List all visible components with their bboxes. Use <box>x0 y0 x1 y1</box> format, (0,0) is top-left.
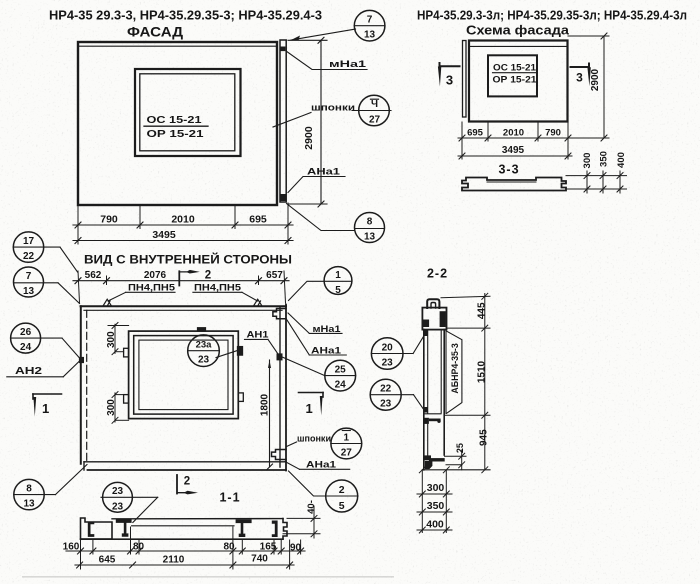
svg-text:23а: 23а <box>196 340 213 351</box>
svg-text:165: 165 <box>260 542 277 553</box>
svg-text:562: 562 <box>85 270 102 281</box>
svg-text:400: 400 <box>426 519 444 531</box>
svg-text:2076: 2076 <box>144 270 167 281</box>
svg-text:740: 740 <box>251 554 268 565</box>
svg-text:23: 23 <box>380 399 392 410</box>
svg-text:22: 22 <box>380 384 392 395</box>
svg-text:ОР 15-21: ОР 15-21 <box>147 129 205 140</box>
svg-text:300: 300 <box>106 399 117 416</box>
svg-text:695: 695 <box>249 214 267 226</box>
svg-text:300: 300 <box>427 482 445 494</box>
svg-text:3: 3 <box>446 73 453 88</box>
svg-text:24: 24 <box>20 342 32 353</box>
svg-text:5: 5 <box>335 285 341 296</box>
svg-text:шпонки: шпонки <box>311 103 355 114</box>
svg-text:8: 8 <box>26 484 32 495</box>
svg-text:23: 23 <box>112 486 124 497</box>
svg-text:ОС 15-21: ОС 15-21 <box>493 63 536 73</box>
svg-text:7: 7 <box>367 15 373 26</box>
svg-text:25: 25 <box>455 443 465 453</box>
svg-text:ПН4,ПН5: ПН4,ПН5 <box>128 283 175 293</box>
svg-text:1800: 1800 <box>260 393 271 416</box>
svg-text:22: 22 <box>23 251 35 262</box>
svg-text:ПН4,ПН5: ПН4,ПН5 <box>194 283 241 293</box>
svg-text:3495: 3495 <box>502 145 525 156</box>
svg-text:23: 23 <box>112 502 124 513</box>
svg-text:445: 445 <box>476 302 487 319</box>
svg-text:8: 8 <box>367 217 373 228</box>
svg-text:20: 20 <box>382 343 394 354</box>
svg-text:300: 300 <box>582 153 593 169</box>
svg-text:3495: 3495 <box>152 229 176 241</box>
svg-text:3-3: 3-3 <box>498 163 519 177</box>
svg-text:25: 25 <box>335 365 347 376</box>
svg-text:80: 80 <box>133 542 145 553</box>
svg-text:790: 790 <box>545 128 561 139</box>
svg-text:2: 2 <box>205 270 211 282</box>
svg-text:23: 23 <box>382 358 394 369</box>
svg-text:1: 1 <box>42 401 49 416</box>
svg-text:1: 1 <box>306 401 313 416</box>
svg-text:НР4-35 29.3-3, НР4-35.29.35-3;: НР4-35 29.3-3, НР4-35.29.35-3; НР4-35.29… <box>49 8 322 23</box>
svg-text:13: 13 <box>23 286 35 297</box>
svg-text:160: 160 <box>63 542 80 553</box>
svg-text:АНа1: АНа1 <box>307 167 341 178</box>
svg-text:350: 350 <box>427 500 445 512</box>
svg-text:13: 13 <box>364 232 376 243</box>
svg-text:17: 17 <box>23 236 35 247</box>
svg-text:27: 27 <box>369 115 381 126</box>
svg-text:90: 90 <box>290 543 302 554</box>
svg-text:400: 400 <box>616 152 627 168</box>
svg-text:790: 790 <box>100 214 118 226</box>
svg-text:23: 23 <box>198 355 210 366</box>
svg-text:Схема фасада: Схема фасада <box>466 23 570 38</box>
svg-text:27: 27 <box>341 448 353 459</box>
svg-text:ВИД С ВНУТРЕННЕЙ СТОРОНЫ: ВИД С ВНУТРЕННЕЙ СТОРОНЫ <box>84 254 292 267</box>
svg-text:2110: 2110 <box>163 555 185 566</box>
svg-text:657: 657 <box>266 270 283 281</box>
svg-text:1: 1 <box>335 270 341 281</box>
svg-text:шпонки: шпонки <box>297 434 331 445</box>
svg-text:645: 645 <box>99 555 116 566</box>
svg-text:1-1: 1-1 <box>219 491 240 505</box>
svg-text:Ч: Ч <box>371 99 378 110</box>
svg-text:2-2: 2-2 <box>427 267 448 281</box>
svg-text:2900: 2900 <box>303 126 315 150</box>
svg-text:ОС 15-21: ОС 15-21 <box>147 115 203 126</box>
svg-text:300: 300 <box>106 331 117 348</box>
svg-text:695: 695 <box>467 128 484 139</box>
svg-text:НР4-35.29.3-3л; НР4-35.29.35-3: НР4-35.29.3-3л; НР4-35.29.35-3л; НР4-35.… <box>417 8 687 23</box>
svg-text:1: 1 <box>344 433 350 444</box>
svg-text:АБНР4-35-3: АБНР4-35-3 <box>450 343 460 393</box>
svg-text:40-: 40- <box>306 500 317 514</box>
svg-text:7: 7 <box>26 271 32 282</box>
svg-text:1510: 1510 <box>476 360 487 383</box>
svg-text:80: 80 <box>223 542 235 553</box>
svg-text:945: 945 <box>478 429 489 446</box>
svg-text:2010: 2010 <box>503 128 524 139</box>
svg-text:350: 350 <box>599 151 610 167</box>
svg-text:мНа1: мНа1 <box>329 59 367 70</box>
svg-text:24: 24 <box>335 380 347 391</box>
svg-text:5: 5 <box>339 500 345 512</box>
svg-text:ОР 15-21: ОР 15-21 <box>493 75 537 85</box>
svg-text:АН2: АН2 <box>15 366 43 377</box>
svg-text:3: 3 <box>576 71 583 85</box>
svg-text:2900: 2900 <box>590 68 601 91</box>
svg-text:26: 26 <box>20 327 32 338</box>
svg-text:2: 2 <box>339 484 345 496</box>
svg-text:ФАСАД: ФАСАД <box>127 25 183 40</box>
svg-text:2: 2 <box>184 476 190 488</box>
svg-text:13: 13 <box>364 30 376 41</box>
svg-text:13: 13 <box>23 499 35 510</box>
svg-text:2010: 2010 <box>171 214 195 226</box>
